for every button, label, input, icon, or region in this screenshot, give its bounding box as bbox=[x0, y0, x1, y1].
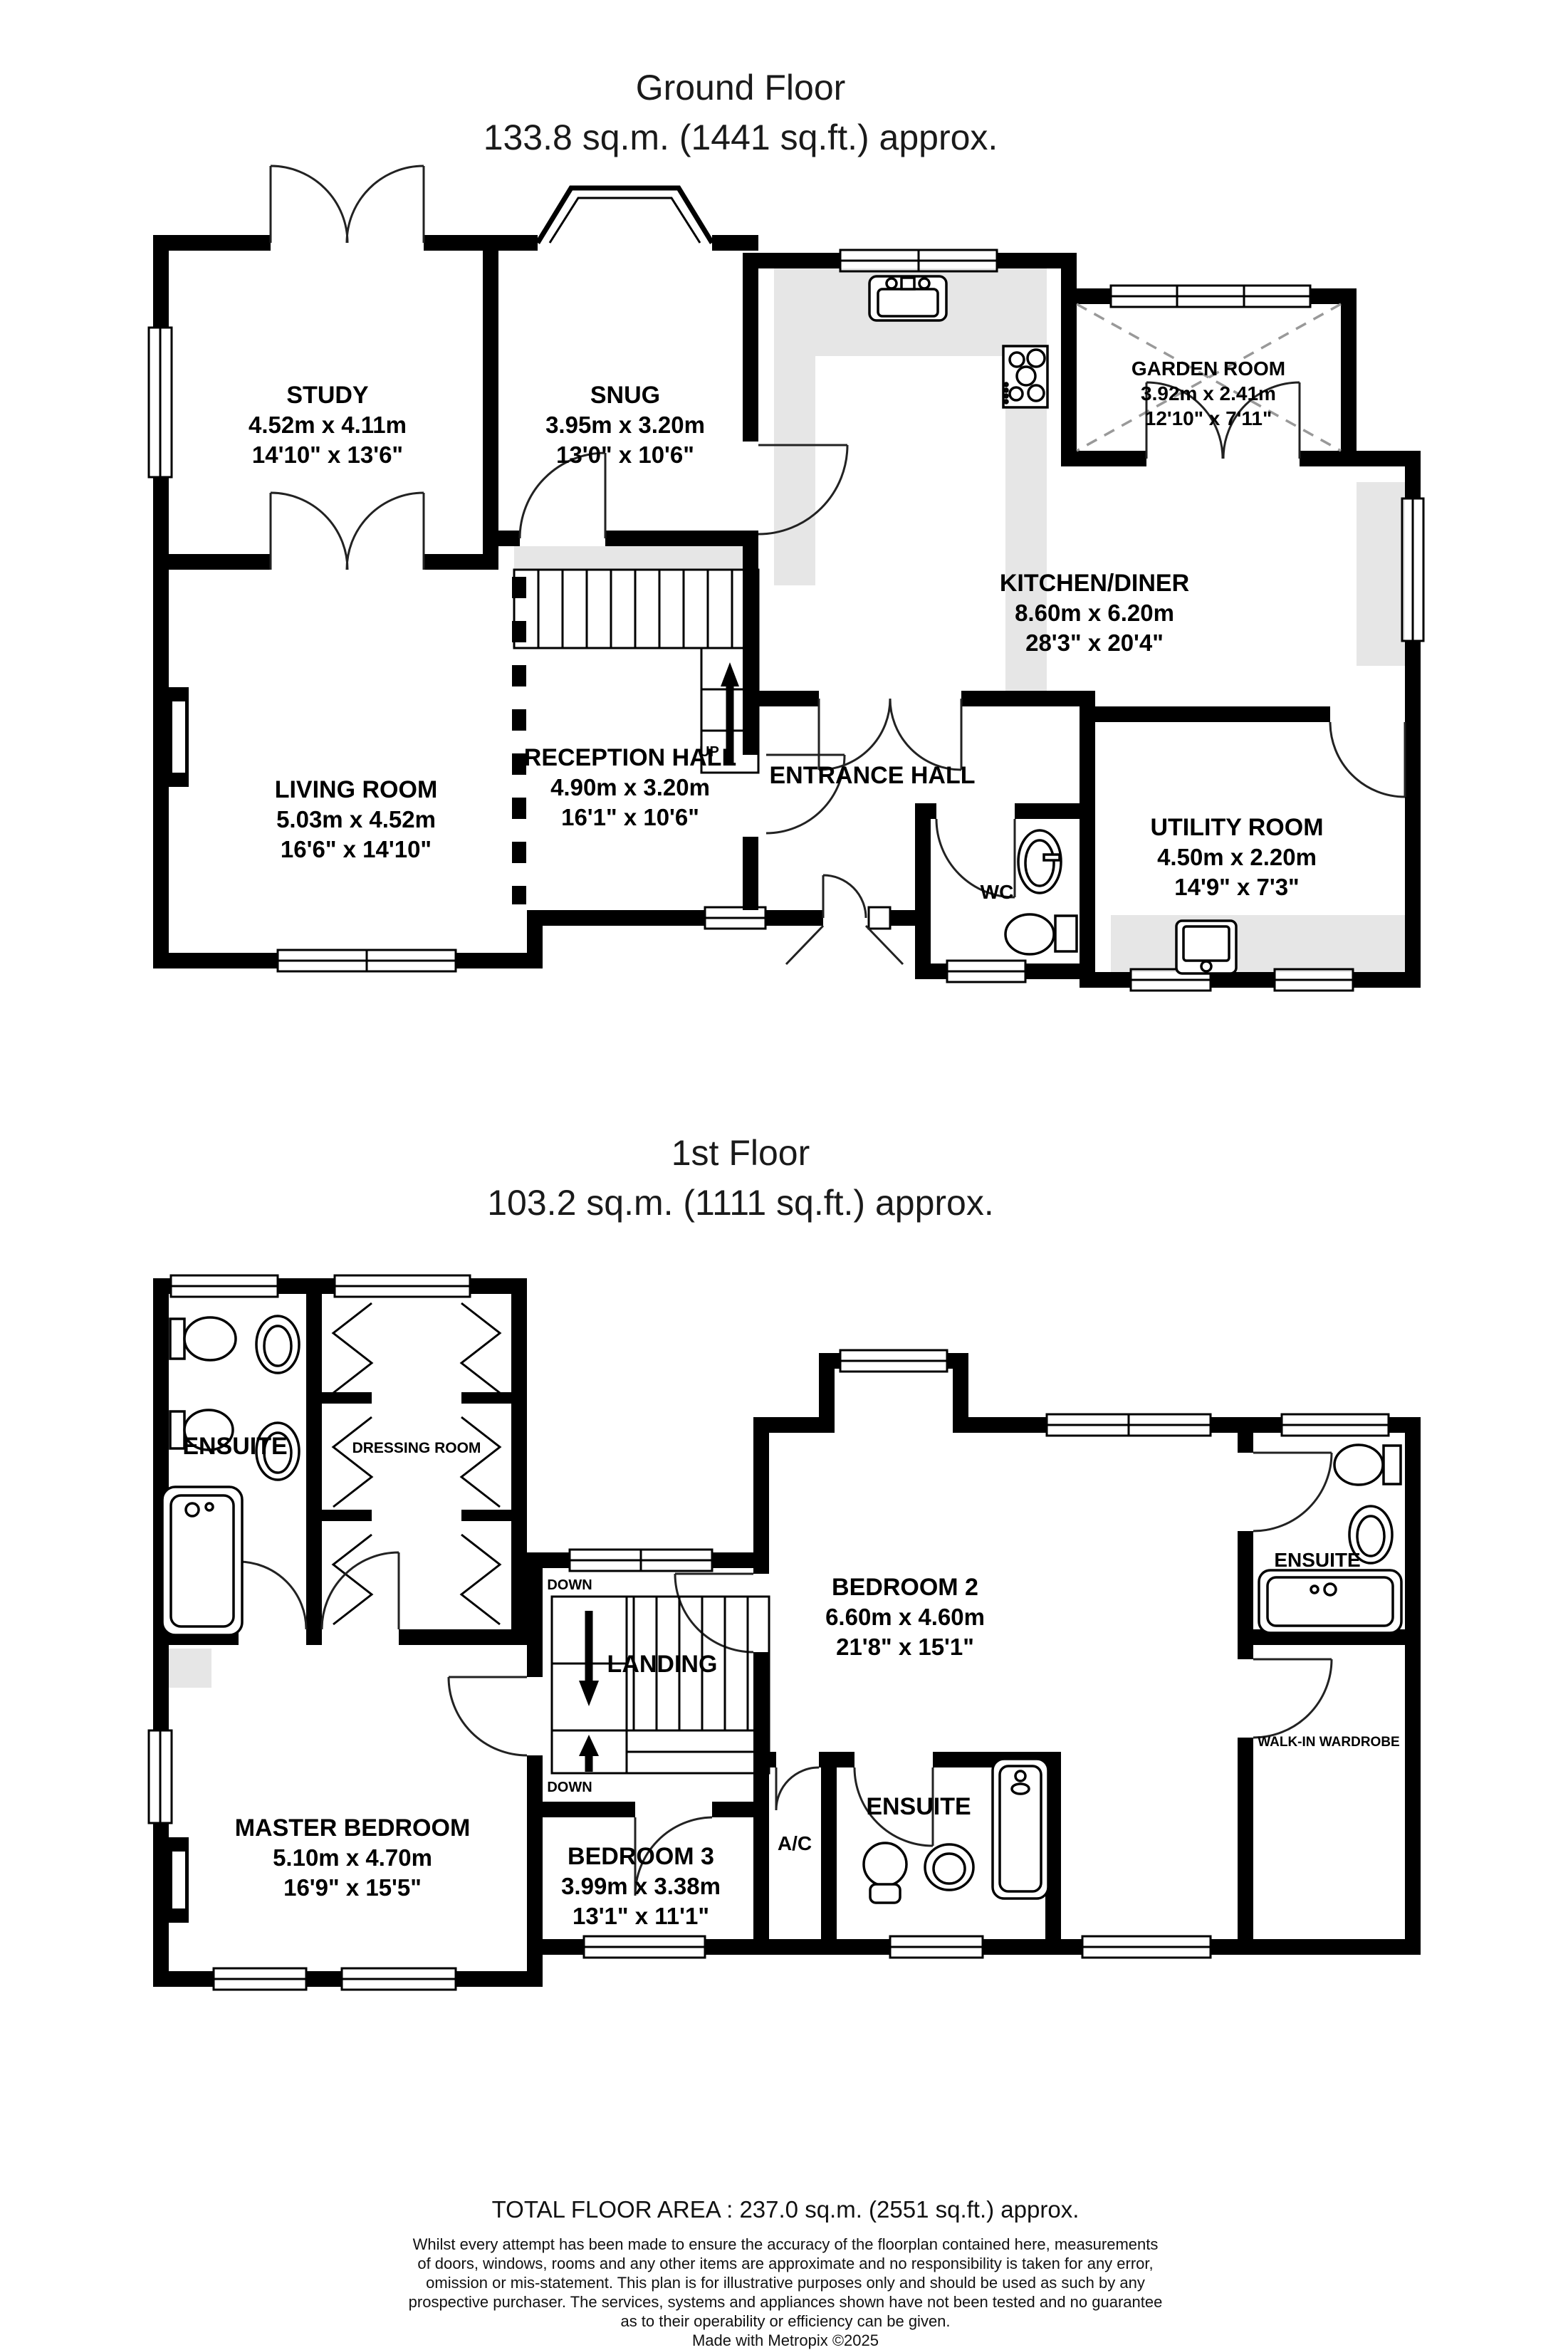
ensuite-top-right-fixtures bbox=[1259, 1445, 1401, 1633]
first-floor-title-area: 103.2 sq.m. (1111 sq.ft.) approx. bbox=[0, 1178, 1481, 1228]
washing-machine-icon bbox=[1176, 921, 1236, 973]
disclaimer-line: omission or mis-statement. This plan is … bbox=[0, 2273, 1568, 2292]
fireplace-icon bbox=[172, 701, 185, 773]
room-dim-garden-imperial: 12'10" x 7'11" bbox=[1145, 407, 1272, 429]
room-label-bedroom-3: BEDROOM 3 bbox=[568, 1843, 714, 1870]
kitchen-sink-icon bbox=[869, 276, 946, 320]
total-floor-area: TOTAL FLOOR AREA : 237.0 sq.m. (2551 sq.… bbox=[0, 2196, 1568, 2223]
room-label-study: STUDY bbox=[286, 382, 369, 409]
disclaimer-line: prospective purchaser. The services, sys… bbox=[0, 2292, 1568, 2312]
ground-floor-title-area: 133.8 sq.m. (1441 sq.ft.) approx. bbox=[0, 113, 1481, 162]
ground-floor-title: Ground Floor 133.8 sq.m. (1441 sq.ft.) a… bbox=[0, 63, 1481, 162]
room-label-ensuite-bottom: ENSUITE bbox=[866, 1793, 971, 1820]
master-fireplace-icon bbox=[172, 1852, 185, 1908]
room-label-garden-room: GARDEN ROOM bbox=[1131, 357, 1285, 380]
metropix-credit: Made with Metropix ©2025 bbox=[0, 2331, 1568, 2350]
room-label-walk-in-wardrobe: WALK-IN WARDROBE bbox=[1258, 1735, 1399, 1750]
bay-window-icon bbox=[538, 187, 712, 251]
first-floor-labels: ENSUITE DRESSING ROOM MASTER BEDROOM 5.1… bbox=[182, 1433, 1399, 1929]
room-dim-kitchen-metric: 8.60m x 6.20m bbox=[1015, 600, 1174, 626]
room-dim-bedroom2-metric: 6.60m x 4.60m bbox=[825, 1604, 985, 1630]
room-dim-living-metric: 5.03m x 4.52m bbox=[276, 806, 436, 832]
floorplan-page: STUDY 4.52m x 4.11m 14'10" x 13'6" SNUG … bbox=[0, 0, 1568, 2350]
wc-sink-icon bbox=[1018, 830, 1061, 893]
room-dim-kitchen-imperial: 28'3" x 20'4" bbox=[1025, 630, 1164, 656]
room-label-utility-room: UTILITY ROOM bbox=[1150, 814, 1323, 841]
first-floor-title-name: 1st Floor bbox=[0, 1128, 1481, 1178]
room-dim-garden-metric: 3.92m x 2.41m bbox=[1141, 382, 1276, 404]
first-floor-plan: ENSUITE DRESSING ROOM MASTER BEDROOM 5.1… bbox=[149, 1275, 1421, 1990]
room-dim-reception-metric: 4.90m x 3.20m bbox=[550, 774, 710, 800]
room-dim-utility-imperial: 14'9" x 7'3" bbox=[1174, 874, 1299, 900]
room-dim-bedroom3-imperial: 13'1" x 11'1" bbox=[573, 1903, 709, 1929]
disclaimer-line: Whilst every attempt has been made to en… bbox=[0, 2235, 1568, 2254]
room-label-wc: WC bbox=[981, 881, 1014, 903]
room-label-master-bedroom: MASTER BEDROOM bbox=[235, 1814, 471, 1842]
staircase-down bbox=[552, 1597, 769, 1773]
room-dim-bedroom3-metric: 3.99m x 3.38m bbox=[561, 1873, 721, 1899]
room-dim-master-metric: 5.10m x 4.70m bbox=[273, 1844, 432, 1871]
room-dim-reception-imperial: 16'1" x 10'6" bbox=[561, 804, 699, 830]
down-arrow-icon bbox=[579, 1735, 599, 1756]
wc-toilet-icon bbox=[1005, 914, 1077, 954]
hob-icon bbox=[1003, 346, 1047, 407]
room-dim-study-metric: 4.52m x 4.11m bbox=[249, 412, 407, 438]
ensuite-top-left-fixtures bbox=[162, 1316, 299, 1635]
room-label-ensuite-top-left: ENSUITE bbox=[182, 1433, 287, 1460]
room-label-dressing-room: DRESSING ROOM bbox=[352, 1440, 481, 1456]
room-label-ac-cupboard: A/C bbox=[778, 1832, 812, 1854]
room-dim-snug-metric: 3.95m x 3.20m bbox=[545, 412, 705, 438]
up-arrow-icon bbox=[721, 662, 739, 686]
disclaimer: Whilst every attempt has been made to en… bbox=[0, 2235, 1568, 2350]
room-label-landing: LANDING bbox=[607, 1651, 718, 1678]
ensuite-bottom-fixtures bbox=[864, 1759, 1048, 1903]
room-label-ensuite-top-right: ENSUITE bbox=[1274, 1549, 1360, 1571]
disclaimer-line: of doors, windows, rooms and any other i… bbox=[0, 2254, 1568, 2273]
room-dim-snug-imperial: 13'0" x 10'6" bbox=[556, 442, 694, 468]
ground-floor-plan: STUDY 4.52m x 4.11m 14'10" x 13'6" SNUG … bbox=[149, 166, 1423, 991]
stairs-up-label: UP bbox=[699, 744, 719, 760]
disclaimer-line: as to their operability or efficiency ca… bbox=[0, 2312, 1568, 2331]
stairs-down-label-lower: DOWN bbox=[547, 1780, 592, 1795]
ground-floor-title-name: Ground Floor bbox=[0, 63, 1481, 113]
room-label-living-room: LIVING ROOM bbox=[275, 776, 438, 803]
room-label-snug: SNUG bbox=[590, 382, 660, 409]
room-dim-utility-metric: 4.50m x 2.20m bbox=[1157, 844, 1317, 870]
room-dim-study-imperial: 14'10" x 13'6" bbox=[252, 442, 403, 468]
room-label-kitchen-diner: KITCHEN/DINER bbox=[1000, 570, 1189, 597]
room-dim-living-imperial: 16'6" x 14'10" bbox=[281, 836, 432, 862]
first-floor-shading bbox=[169, 1649, 211, 1688]
down-arrow-icon bbox=[579, 1681, 599, 1706]
room-label-entrance-hall: ENTRANCE HALL bbox=[770, 762, 976, 789]
first-floor-title: 1st Floor 103.2 sq.m. (1111 sq.ft.) appr… bbox=[0, 1128, 1481, 1228]
wardrobe-rail-icon bbox=[333, 1303, 500, 1624]
room-dim-master-imperial: 16'9" x 15'5" bbox=[283, 1874, 422, 1901]
staircase-up bbox=[514, 570, 758, 773]
room-label-bedroom-2: BEDROOM 2 bbox=[832, 1574, 978, 1601]
room-dim-bedroom2-imperial: 21'8" x 15'1" bbox=[836, 1634, 974, 1660]
stairs-down-label-upper: DOWN bbox=[547, 1577, 592, 1593]
